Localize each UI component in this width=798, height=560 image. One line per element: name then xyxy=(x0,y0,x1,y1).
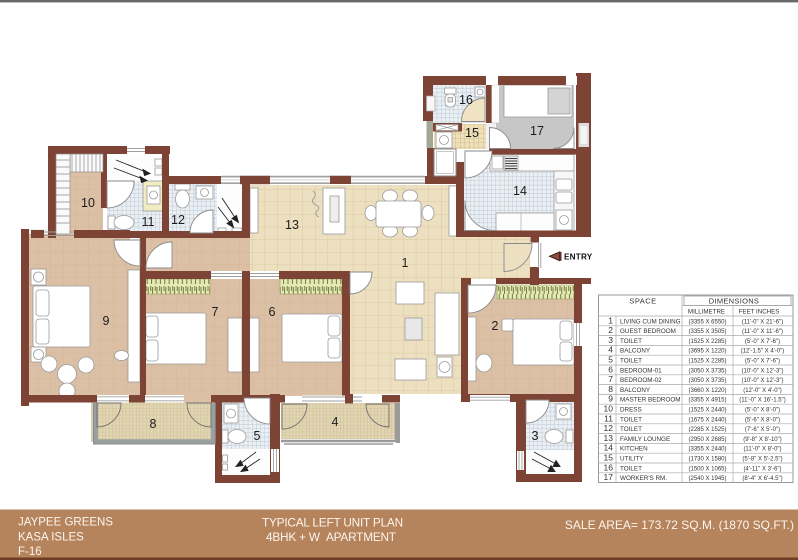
svg-text:UTILITY: UTILITY xyxy=(620,456,644,463)
svg-text:(5'-0" X 7'-6"): (5'-0" X 7'-6") xyxy=(745,359,780,365)
svg-text:5: 5 xyxy=(608,355,613,365)
svg-text:LIVING CUM DINING: LIVING CUM DINING xyxy=(620,318,681,325)
svg-text:TOILET: TOILET xyxy=(620,426,642,433)
svg-text:(1500 X 1065): (1500 X 1065) xyxy=(688,466,726,472)
svg-text:(9'-8" X 8'-10"): (9'-8" X 8'-10") xyxy=(743,437,782,443)
svg-text:17: 17 xyxy=(530,124,544,138)
svg-text:(5'-6" X 8'-0"): (5'-6" X 8'-0") xyxy=(745,417,780,423)
svg-text:(11'-0" X 8'-0"): (11'-0" X 8'-0") xyxy=(743,447,781,453)
svg-text:(3050 X 3735): (3050 X 3735) xyxy=(688,378,726,384)
svg-text:12: 12 xyxy=(171,213,185,227)
svg-text:FEET INCHES: FEET INCHES xyxy=(739,309,780,316)
svg-text:(2285 X 1525): (2285 X 1525) xyxy=(688,427,726,433)
svg-text:JAYPEE GREENS: JAYPEE GREENS xyxy=(18,517,113,529)
svg-text:(10'-0" X 12'-3"): (10'-0" X 12'-3") xyxy=(742,368,784,374)
svg-text:(3660 X 1220): (3660 X 1220) xyxy=(688,388,726,394)
svg-text:BALCONY: BALCONY xyxy=(620,387,651,394)
svg-text:BALCONY: BALCONY xyxy=(620,348,651,355)
svg-text:(3050 X 3735): (3050 X 3735) xyxy=(688,368,726,374)
svg-text:(3355 X 3505): (3355 X 3505) xyxy=(688,329,726,335)
svg-text:KITCHEN: KITCHEN xyxy=(620,446,648,453)
svg-text:(1525 X 2285): (1525 X 2285) xyxy=(688,339,726,345)
svg-text:10: 10 xyxy=(81,196,95,210)
svg-text:BEDROOM-02: BEDROOM-02 xyxy=(620,377,662,384)
svg-text:8: 8 xyxy=(608,384,613,394)
svg-text:(3355 X 6550): (3355 X 6550) xyxy=(688,319,726,325)
svg-text:(12'-1.5" X 4'-0"): (12'-1.5" X 4'-0") xyxy=(741,349,785,355)
svg-text:(3355 X 4915): (3355 X 4915) xyxy=(688,398,726,404)
svg-text:FAMILY LOUNGE: FAMILY LOUNGE xyxy=(620,436,670,443)
svg-text:3: 3 xyxy=(608,335,613,345)
svg-text:(11'-0" X 21'-6"): (11'-0" X 21'-6") xyxy=(742,319,783,325)
svg-text:KASA ISLES: KASA ISLES xyxy=(18,532,84,544)
svg-text:2: 2 xyxy=(492,319,499,333)
svg-text:14: 14 xyxy=(604,443,614,453)
svg-text:(5'-0" X 8'-0"): (5'-0" X 8'-0") xyxy=(745,408,780,414)
svg-text:17: 17 xyxy=(604,472,614,482)
svg-text:MASTER BEDROOM: MASTER BEDROOM xyxy=(620,397,681,404)
svg-text:1: 1 xyxy=(608,315,613,325)
svg-text:14: 14 xyxy=(513,184,527,198)
svg-text:(1730 X 1580): (1730 X 1580) xyxy=(688,457,726,463)
svg-text:(5'-0" X 7'-6"): (5'-0" X 7'-6") xyxy=(745,339,780,345)
svg-text:9: 9 xyxy=(608,394,613,404)
svg-text:(2950 X 2685): (2950 X 2685) xyxy=(688,437,726,443)
svg-text:6: 6 xyxy=(608,364,613,374)
svg-text:(1675 X 2440): (1675 X 2440) xyxy=(688,417,726,423)
svg-text:SPACE: SPACE xyxy=(629,297,656,306)
svg-text:(3355 X 2440): (3355 X 2440) xyxy=(688,447,726,453)
svg-text:4: 4 xyxy=(608,345,613,355)
svg-text:7: 7 xyxy=(608,374,613,384)
svg-text:3: 3 xyxy=(532,429,539,443)
svg-text:TYPICAL LEFT UNIT PLAN: TYPICAL LEFT UNIT PLAN xyxy=(262,516,403,530)
svg-text:2: 2 xyxy=(608,325,613,335)
svg-text:DIMENSIONS: DIMENSIONS xyxy=(709,296,760,305)
svg-text:5: 5 xyxy=(254,429,261,443)
svg-text:10: 10 xyxy=(604,404,614,414)
svg-text:F-16: F-16 xyxy=(18,546,42,558)
svg-text:16: 16 xyxy=(459,93,473,107)
svg-text:(3695 X 1220): (3695 X 1220) xyxy=(688,349,726,355)
svg-text:15: 15 xyxy=(465,126,479,140)
svg-text:4: 4 xyxy=(332,415,339,429)
svg-text:4BHK + W APARTMENT: 4BHK + W APARTMENT xyxy=(266,530,396,544)
svg-text:9: 9 xyxy=(103,314,110,328)
svg-text:SALE AREA= 173.72 SQ.M. (1870: SALE AREA= 173.72 SQ.M. (1870 SQ.FT.) xyxy=(565,518,794,532)
svg-text:MILLIMETRE: MILLIMETRE xyxy=(688,309,725,316)
svg-text:(10'-0" X 12'-3"): (10'-0" X 12'-3") xyxy=(742,378,784,384)
svg-text:TOILET: TOILET xyxy=(620,416,642,423)
svg-text:BEDROOM-01: BEDROOM-01 xyxy=(620,367,662,374)
svg-text:12: 12 xyxy=(604,423,614,433)
svg-text:13: 13 xyxy=(604,433,614,443)
svg-text:13: 13 xyxy=(285,218,299,232)
svg-text:8: 8 xyxy=(150,417,157,431)
svg-text:ENTRY: ENTRY xyxy=(564,253,593,262)
svg-text:(1525 X 2285): (1525 X 2285) xyxy=(688,359,726,365)
svg-text:TOILET: TOILET xyxy=(620,338,642,345)
svg-text:GUEST BEDROOM: GUEST BEDROOM xyxy=(620,328,676,335)
svg-text:(7'-6" X 5'-0"): (7'-6" X 5'-0") xyxy=(745,427,780,433)
svg-text:(1525 X 2440): (1525 X 2440) xyxy=(688,408,726,414)
svg-text:(11'-0" X 16'-1.5"): (11'-0" X 16'-1.5") xyxy=(739,398,785,404)
svg-text:7: 7 xyxy=(212,305,219,319)
svg-text:TOILET: TOILET xyxy=(620,358,642,365)
svg-text:(12'-0" X 4'-0"): (12'-0" X 4'-0") xyxy=(743,388,782,394)
svg-text:TOILET: TOILET xyxy=(620,465,642,472)
svg-text:(8'-4" X 6'-4.5"): (8'-4" X 6'-4.5") xyxy=(742,476,782,482)
svg-text:(5'-8" X 5'-2.5"): (5'-8" X 5'-2.5") xyxy=(742,457,782,463)
svg-text:11: 11 xyxy=(604,413,613,423)
svg-text:1: 1 xyxy=(402,256,409,270)
svg-text:16: 16 xyxy=(604,462,614,472)
svg-text:(11'-0" X 11'-6"): (11'-0" X 11'-6") xyxy=(742,329,783,335)
svg-text:11: 11 xyxy=(142,215,155,229)
svg-text:15: 15 xyxy=(604,453,614,463)
svg-text:(4'-11" X 3'-6"): (4'-11" X 3'-6") xyxy=(743,466,781,472)
svg-text:6: 6 xyxy=(269,305,276,319)
svg-text:DRESS: DRESS xyxy=(620,407,642,414)
svg-text:WORKER'S RM.: WORKER'S RM. xyxy=(620,475,667,482)
svg-text:(2540 X 1945): (2540 X 1945) xyxy=(688,476,726,482)
